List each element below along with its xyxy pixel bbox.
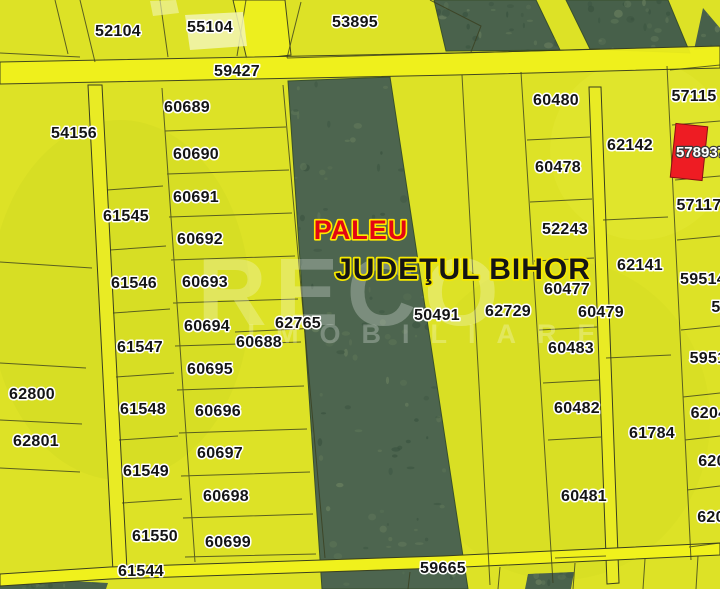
parcel-label-60693: 60693 [182,274,228,291]
parcel-label-53895: 53895 [332,14,378,31]
parcel-label-60479: 60479 [578,304,624,321]
parcel-label-62729: 62729 [485,303,531,320]
parcel-label-62765: 62765 [275,315,321,332]
parcel-label-62142: 62142 [607,137,653,154]
parcel-label-60477: 60477 [544,281,590,298]
parcel-label-59514: 59514 [680,271,720,288]
locality-label: PALEU [314,215,409,245]
parcel-label-60695: 60695 [187,361,233,378]
parcel-label-50491: 50491 [414,307,460,324]
parcel-label-60690: 60690 [173,146,219,163]
parcel-label-61548: 61548 [120,401,166,418]
parcel-label-60483: 60483 [548,340,594,357]
parcel-label-60696: 60696 [195,403,241,420]
parcel-label-62801: 62801 [13,433,59,450]
parcel-label-60699: 60699 [205,534,251,551]
parcel-label-61550: 61550 [132,528,178,545]
parcel-label-62141: 62141 [617,257,663,274]
cadastral-map[interactable]: RECO IMOBILIARE PALEU JUDEŢUL BIHOR 5210… [0,0,720,589]
parcel-label-620: 620 [698,453,720,470]
parcel-label-52243: 52243 [542,221,588,238]
parcel-label-60478: 60478 [535,159,581,176]
parcel-label-59665: 59665 [420,560,466,577]
parcel-label-60482: 60482 [554,400,600,417]
parcel-label-57115: 57115 [671,88,716,105]
parcel-label-52104: 52104 [95,23,141,40]
parcel-label-60481: 60481 [561,488,607,505]
parcel-label-55104: 55104 [187,19,233,36]
parcel-label-61549: 61549 [123,463,169,480]
parcel-label-61784: 61784 [629,425,675,442]
parcel-label-60692: 60692 [177,231,223,248]
parcel-label-61544: 61544 [118,563,164,580]
parcel-label-61545: 61545 [103,208,149,225]
parcel-label-60480: 60480 [533,92,579,109]
parcel-label-62800: 62800 [9,386,55,403]
parcel-label-60698: 60698 [203,488,249,505]
parcel-label-61546: 61546 [111,275,157,292]
map-canvas[interactable]: RECO IMOBILIARE PALEU JUDEŢUL BIHOR 5210… [0,0,720,589]
highlighted-parcel-label: 578937 [676,144,720,161]
parcel-label-59427: 59427 [214,63,260,80]
parcel-label-60689: 60689 [164,99,210,116]
parcel-label-54156: 54156 [51,125,97,142]
parcel-label-60694: 60694 [184,318,230,335]
parcel-label-60697: 60697 [197,445,243,462]
parcel-label-6204: 6204 [691,405,720,422]
parcel-label-60688: 60688 [236,334,282,351]
parcel-label-61547: 61547 [117,339,163,356]
parcel-label-5: 5 [711,299,720,316]
parcel-label-5951: 5951 [690,350,720,367]
parcel-label-620: 620 [697,509,720,526]
parcel-label-57117: 57117 [676,197,720,214]
parcel-label-60691: 60691 [173,189,219,206]
